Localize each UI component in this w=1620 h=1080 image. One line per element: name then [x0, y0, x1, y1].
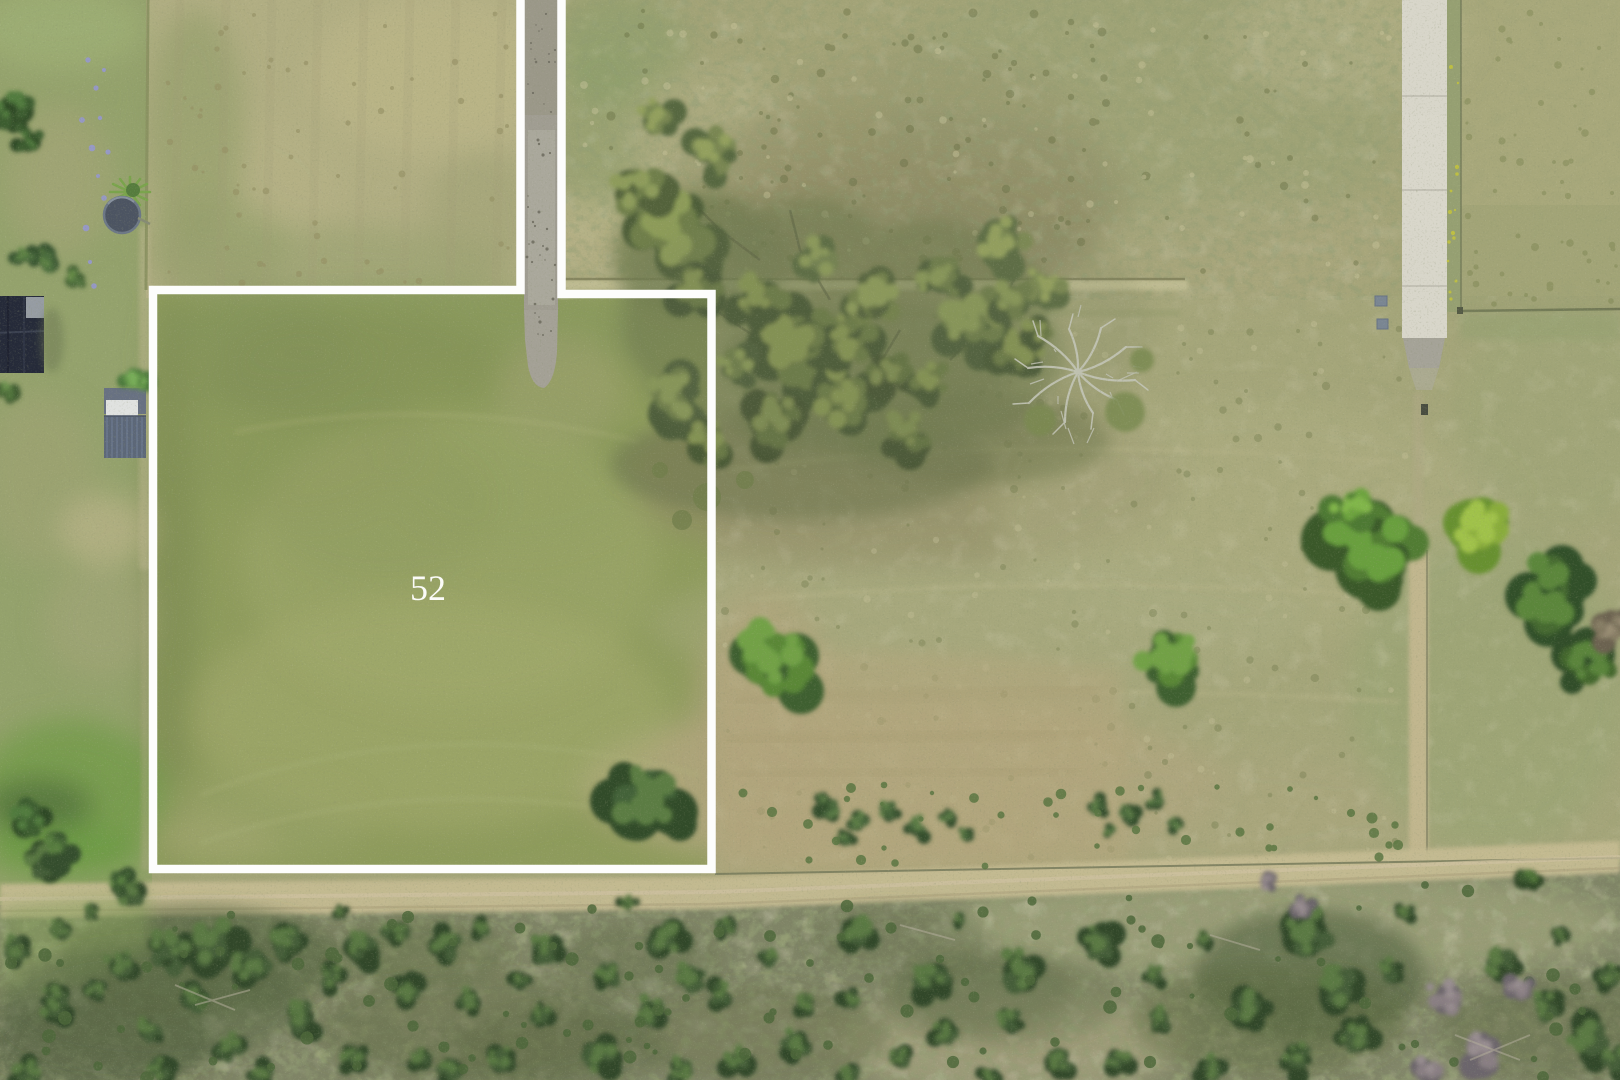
svg-text:52: 52 [410, 568, 446, 608]
